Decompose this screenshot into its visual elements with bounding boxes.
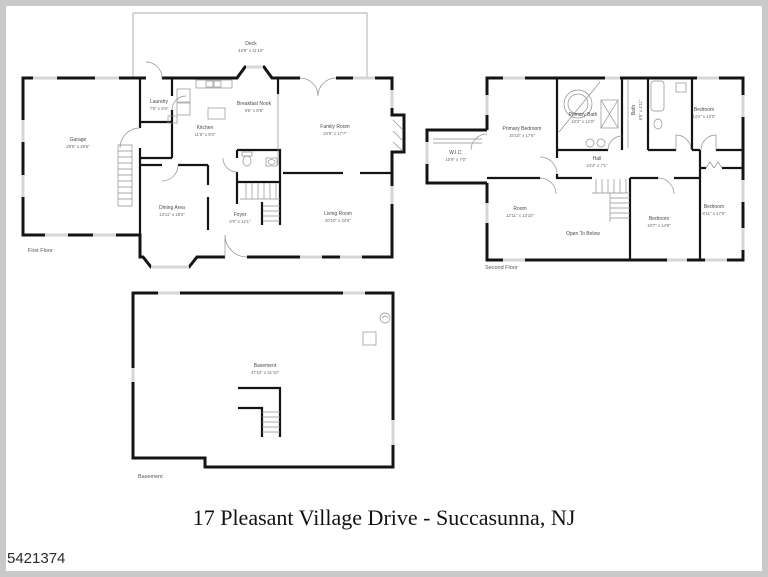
room-label-bedroom-top-right: Bedroom 14'4" x 13'0" [692, 107, 716, 119]
room-label-basement: Basement 47'10" x 31'10" [251, 363, 279, 375]
caption-first-floor: First Floor [28, 248, 53, 254]
address-title: 17 Pleasant Village Drive - Succasunna, … [0, 505, 768, 531]
room-name: Basement [251, 363, 279, 370]
closet-bifold-doors [706, 162, 722, 168]
bathroom-fixtures [242, 152, 277, 166]
room-name: Breakfast Nook [237, 101, 271, 108]
room-dims: 7'5" x 5'6" [150, 105, 169, 111]
room-label-foyer: Foyer 6'6" x 12'1" [229, 212, 250, 224]
room-label-deck: Deck 43'8" x 11'10" [238, 41, 264, 53]
room-label-open-to-below: Open To Below [566, 231, 600, 238]
room-label-bedroom-middle: Bedroom 10'7" x 14'8" [647, 216, 671, 228]
floorplan-photo: Deck 43'8" x 11'10" Garage 29'5" x 29'5"… [0, 0, 768, 577]
room-label-garage: Garage 29'5" x 29'5" [66, 137, 90, 149]
room-name: Primary Bath [569, 112, 598, 119]
room-label-hall: Hall 24'4" x 7'1" [586, 156, 607, 168]
room-dims: 20'10" x 24'5" [324, 217, 352, 223]
room-name: Garage [66, 137, 90, 144]
room-label-breakfast-nook: Breakfast Nook 9'6" x 8'9" [237, 101, 271, 113]
room-dims: 10'9" x 7'0" [445, 156, 466, 162]
utility-symbols [363, 313, 390, 345]
caption-basement: Basement [138, 474, 163, 480]
room-name: Laundry [150, 99, 169, 106]
basement-stairs [262, 412, 280, 432]
room-dims: 47'10" x 31'10" [251, 369, 279, 375]
room-dims: 13'11" x 18'3" [159, 211, 185, 217]
caption-second-floor: Second Floor [485, 265, 518, 271]
basement-plan [133, 293, 393, 467]
room-label-kitchen: Kitchen 11'6" x 9'4" [195, 125, 216, 137]
room-label-primary-bedroom: Primary Bedroom 15'10" x 17'6" [503, 126, 542, 138]
room-label-dining-area: Dining Area 13'11" x 18'3" [159, 205, 185, 217]
room-name: Bedroom [692, 107, 716, 114]
room-dims: 15'10" x 17'6" [503, 132, 542, 138]
basement-stair-walls [238, 388, 280, 437]
room-dims: 6'6" x 12'1" [229, 218, 250, 224]
room-name: Kitchen [195, 125, 216, 132]
room-label-primary-bath: Primary Bath 10'2" x 12'0" [569, 112, 598, 124]
garage-stairs [118, 145, 132, 206]
room-dims: 8'5" x 4'11" [637, 100, 643, 121]
first-floor-door-arcs [120, 62, 336, 257]
fireplace-hatch [393, 120, 403, 151]
room-label-room: Room 12'11" x 13'10" [506, 206, 534, 218]
room-name: Bedroom [702, 204, 725, 211]
room-dims: 9'6" x 8'9" [237, 107, 271, 113]
room-dims: 9'11" x 17'6" [702, 210, 725, 216]
room-label-wic: W.I.C. 10'9" x 7'0" [445, 150, 466, 162]
room-dims: 10'7" x 14'8" [647, 222, 671, 228]
room-name: Family Room [320, 124, 349, 131]
room-label-hall-bath: Bath 8'5" x 4'11" [631, 100, 643, 121]
basement-outer-walls [133, 293, 393, 467]
room-name: Primary Bedroom [503, 126, 542, 133]
first-floor-outer-walls [23, 67, 404, 267]
photo-id: 5421374 [7, 550, 65, 567]
room-label-living-room: Living Room 20'10" x 24'5" [324, 211, 352, 223]
room-name: Dining Area [159, 205, 185, 212]
room-label-laundry: Laundry 7'5" x 5'6" [150, 99, 169, 111]
room-dims: 14'4" x 13'0" [692, 113, 716, 119]
room-dims: 10'2" x 12'0" [569, 118, 598, 124]
room-dims: 12'11" x 13'10" [506, 212, 534, 218]
room-dims: 24'4" x 7'1" [586, 162, 607, 168]
room-name: Bedroom [647, 216, 671, 223]
room-label-family-room: Family Room 20'8" x 17'7" [320, 124, 349, 136]
room-name: Living Room [324, 211, 352, 218]
room-name: Open To Below [566, 231, 600, 238]
room-dims: 43'8" x 11'10" [238, 47, 264, 53]
kitchen-fixtures [168, 80, 232, 123]
floorplan-drawing [0, 0, 768, 577]
second-floor-stairs [592, 179, 630, 222]
room-dims: 29'5" x 29'5" [66, 143, 90, 149]
room-dims: 20'8" x 17'7" [320, 130, 349, 136]
room-dims: 11'6" x 9'4" [195, 131, 216, 137]
room-label-bedroom-right: Bedroom 9'11" x 17'6" [702, 204, 725, 216]
